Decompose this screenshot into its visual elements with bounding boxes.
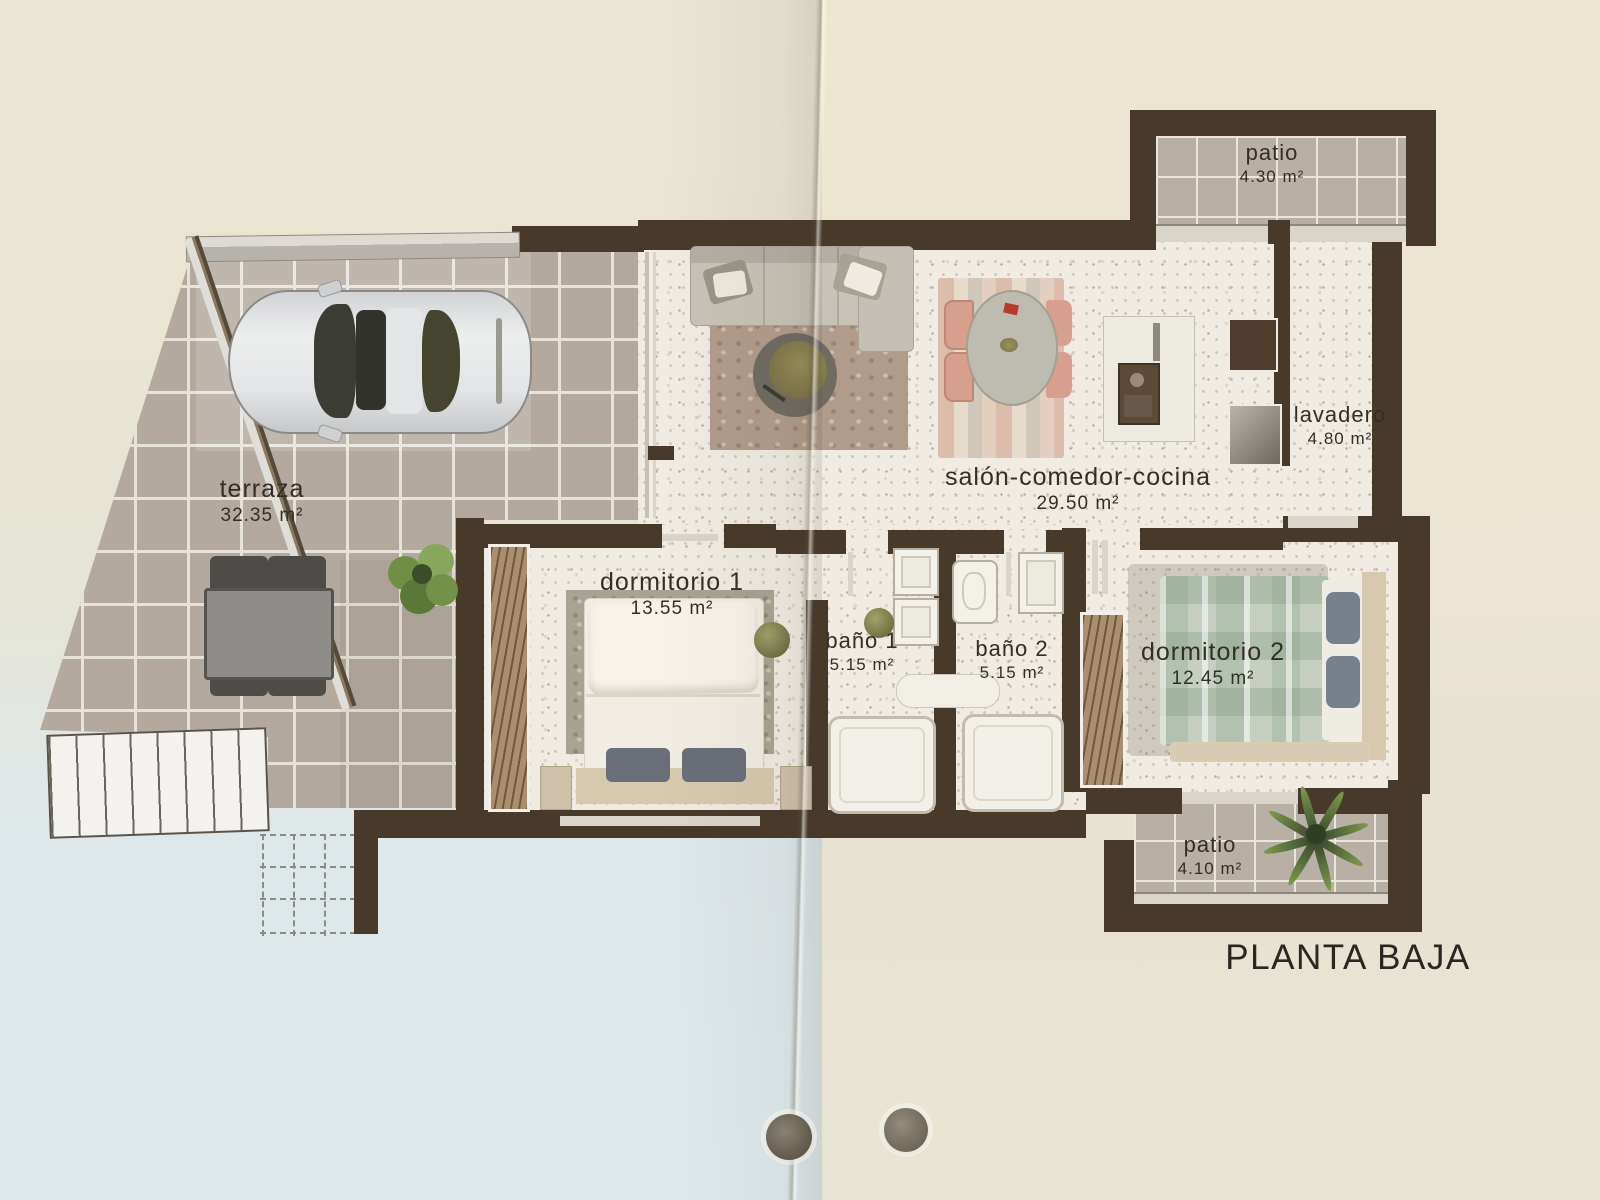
room-name: patio <box>1240 140 1305 166</box>
room-area: 12.45 m² <box>1141 668 1285 690</box>
lavadero-door <box>1288 516 1358 528</box>
dashed-step <box>260 932 356 934</box>
wall-segment <box>456 518 484 838</box>
wall-segment <box>1130 110 1436 136</box>
car-trunk-line <box>496 318 502 404</box>
wall-segment <box>1398 516 1430 794</box>
bano2-door-leaf <box>1006 552 1011 596</box>
room-area: 32.35 m² <box>220 505 305 527</box>
room-name: salón-comedor-cocina <box>945 463 1211 492</box>
sink-drain <box>1130 373 1144 387</box>
bed-pillow-dark <box>1326 592 1360 644</box>
bano1-door-leaf <box>848 552 853 596</box>
room-label-patio-bottom: patio 4.10 m² <box>1178 832 1243 879</box>
potted-plant <box>384 538 460 618</box>
wall-segment <box>1140 528 1283 550</box>
room-label-dormitorio2: dormitorio 2 12.45 m² <box>1141 638 1285 690</box>
wall-segment <box>512 226 644 252</box>
plant-foliage <box>426 574 458 606</box>
bano2-door-opening <box>1004 530 1046 554</box>
dashed-step <box>260 898 356 900</box>
sliding-door-terraza <box>653 252 656 518</box>
room-name: terraza <box>220 475 305 504</box>
room-name: baño 1 <box>825 628 898 654</box>
bano1-door-opening <box>846 530 888 554</box>
outdoor-table <box>204 588 334 680</box>
bed-frame-bottom <box>1170 742 1370 762</box>
wall-segment <box>1388 780 1422 932</box>
car-sunroof <box>356 310 386 410</box>
room-area: 29.50 m² <box>945 493 1211 515</box>
dining-set <box>938 278 1078 458</box>
nightstand <box>540 766 572 810</box>
photographed-floor-plan: terraza 32.35 m² dormitorio 1 13.55 m² b… <box>0 0 1600 1200</box>
wall-segment <box>1086 788 1182 814</box>
stairs-dashed-continuation <box>260 834 356 936</box>
wardrobe <box>488 544 530 812</box>
kitchen-counter <box>1103 316 1195 442</box>
dashed-stringer <box>293 834 295 936</box>
table-centerpiece <box>1000 338 1018 352</box>
room-area: 4.30 m² <box>1240 167 1305 187</box>
room-area: 4.80 m² <box>1294 429 1386 449</box>
dashed-stringer <box>324 834 326 936</box>
room-area: 5.15 m² <box>975 663 1048 683</box>
car-roof <box>386 308 422 414</box>
wall-segment <box>1104 904 1422 932</box>
plant-center <box>412 564 432 584</box>
room-label-bano2: baño 2 5.15 m² <box>975 636 1048 683</box>
wall-segment <box>1372 242 1402 530</box>
wall-segment <box>456 524 662 548</box>
kitchen-sink <box>1118 363 1160 425</box>
room-name: baño 2 <box>975 636 1048 662</box>
dashed-stringer <box>262 834 264 936</box>
room-label-patio-top: patio 4.30 m² <box>1240 140 1305 187</box>
room-area: 5.15 m² <box>825 655 898 675</box>
bed-headboard <box>1362 572 1386 760</box>
toilet-bowl <box>962 572 986 610</box>
room-label-terraza: terraza 32.35 m² <box>220 475 305 527</box>
washbasin <box>893 598 939 646</box>
refrigerator <box>1228 318 1278 372</box>
palm-center <box>1306 824 1326 844</box>
room-label-salon: salón-comedor-cocina 29.50 m² <box>945 463 1211 515</box>
room-label-lavadero: lavadero 4.80 m² <box>1294 402 1386 449</box>
toilet <box>952 560 998 624</box>
room-name: dormitorio 2 <box>1141 638 1285 667</box>
terraza-railing <box>186 232 520 263</box>
washbasin <box>893 548 939 596</box>
plan-title: PLANTA BAJA <box>1225 938 1470 978</box>
bathtub <box>828 716 936 814</box>
room-name: lavadero <box>1294 402 1386 428</box>
sliding-door-terraza <box>645 252 649 518</box>
bed-pillow-dark <box>1326 656 1360 708</box>
car-windshield <box>314 304 356 418</box>
palm-plant <box>1262 788 1378 888</box>
room-label-bano1: baño 1 5.15 m² <box>825 628 898 675</box>
washer <box>1228 404 1282 466</box>
punch-hole <box>766 1114 812 1160</box>
wall-segment <box>354 810 378 934</box>
outdoor-dining-set <box>196 540 336 700</box>
dashed-step <box>260 866 356 868</box>
dashed-step <box>260 834 356 836</box>
room-area: 4.10 m² <box>1178 859 1243 879</box>
car <box>228 282 532 438</box>
wall-segment <box>1268 220 1290 244</box>
washbasin <box>1018 552 1064 614</box>
bathtub <box>962 714 1064 812</box>
dormitorio2-door-leaf <box>1102 540 1108 594</box>
wardrobe <box>1080 612 1126 788</box>
wall-segment <box>1406 110 1436 246</box>
kitchen-faucet <box>1153 323 1160 361</box>
punch-hole <box>884 1108 928 1152</box>
sink-basin <box>1124 395 1152 417</box>
room-name: patio <box>1178 832 1243 858</box>
dormitorio2-door-leaf <box>1092 540 1098 594</box>
exterior-stairs <box>46 727 269 839</box>
